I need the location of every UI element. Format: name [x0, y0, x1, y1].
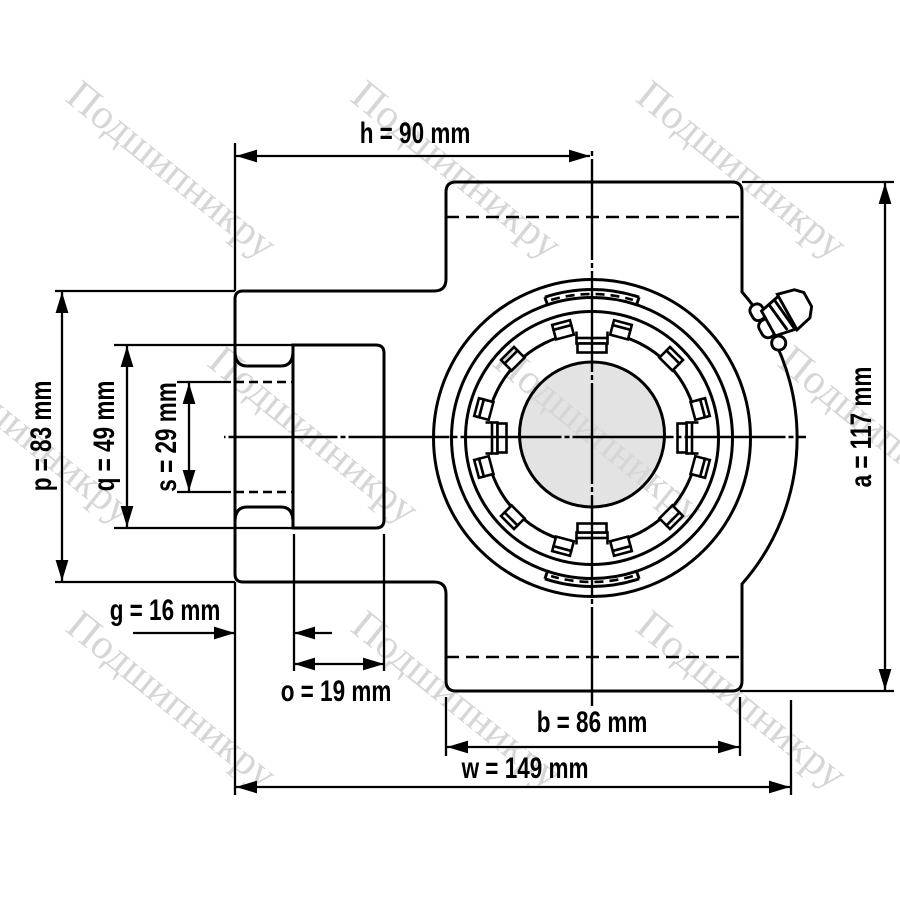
svg-text:Подшипникру: Подшипникру — [200, 337, 428, 534]
svg-text:Подшипникру: Подшипникру — [628, 602, 856, 799]
svg-text:Подшипникру: Подшипникру — [628, 72, 856, 269]
svg-text:Подшипникру: Подшипникру — [770, 337, 900, 534]
svg-text:Подшипникру: Подшипникру — [343, 602, 571, 799]
svg-text:Подшипникру: Подшипникру — [485, 337, 713, 534]
svg-text:Подшипникру: Подшипникру — [58, 72, 286, 269]
svg-text:Подшипникру: Подшипникру — [58, 602, 286, 799]
svg-text:Подшипникру: Подшипникру — [0, 337, 142, 534]
svg-text:Подшипникру: Подшипникру — [343, 72, 571, 269]
